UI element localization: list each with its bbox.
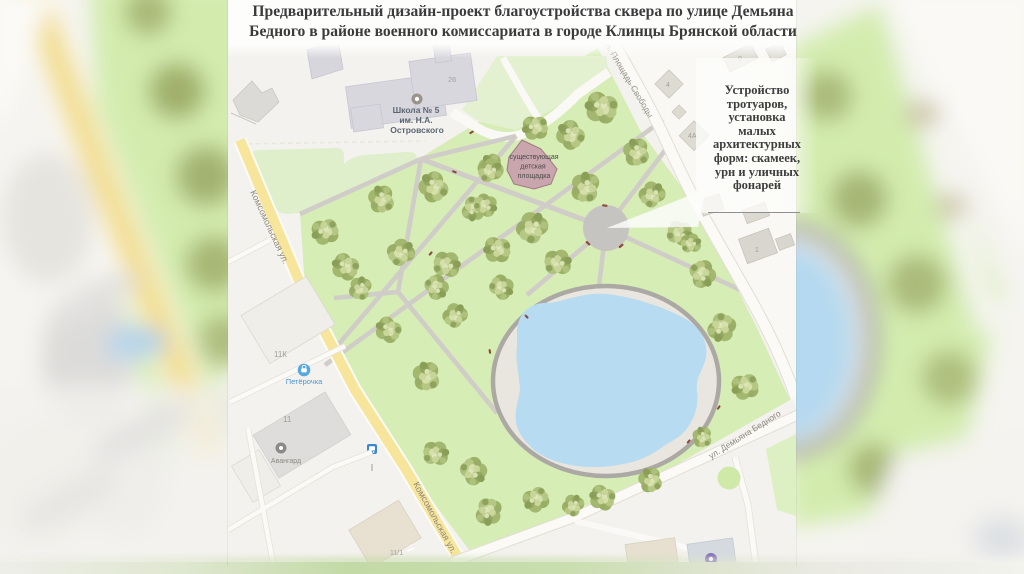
svg-text:площадка: площадка [518,173,551,180]
svg-text:26: 26 [448,75,456,84]
svg-text:11/1: 11/1 [390,550,403,557]
svg-text:им. Н.А.: им. Н.А. [399,115,432,125]
svg-text:1: 1 [755,247,759,254]
svg-text:11: 11 [283,415,292,424]
svg-text:Школа № 5: Школа № 5 [393,105,440,115]
svg-text:Авангард: Авангард [271,458,301,465]
svg-text:Островского: Островского [390,125,444,135]
svg-text:Петёрочка: Петёрочка [286,377,323,386]
svg-text:11К: 11К [274,350,287,359]
svg-text:детская: детская [520,164,545,171]
svg-text:4: 4 [666,82,670,89]
svg-text:существующая: существующая [509,154,558,161]
